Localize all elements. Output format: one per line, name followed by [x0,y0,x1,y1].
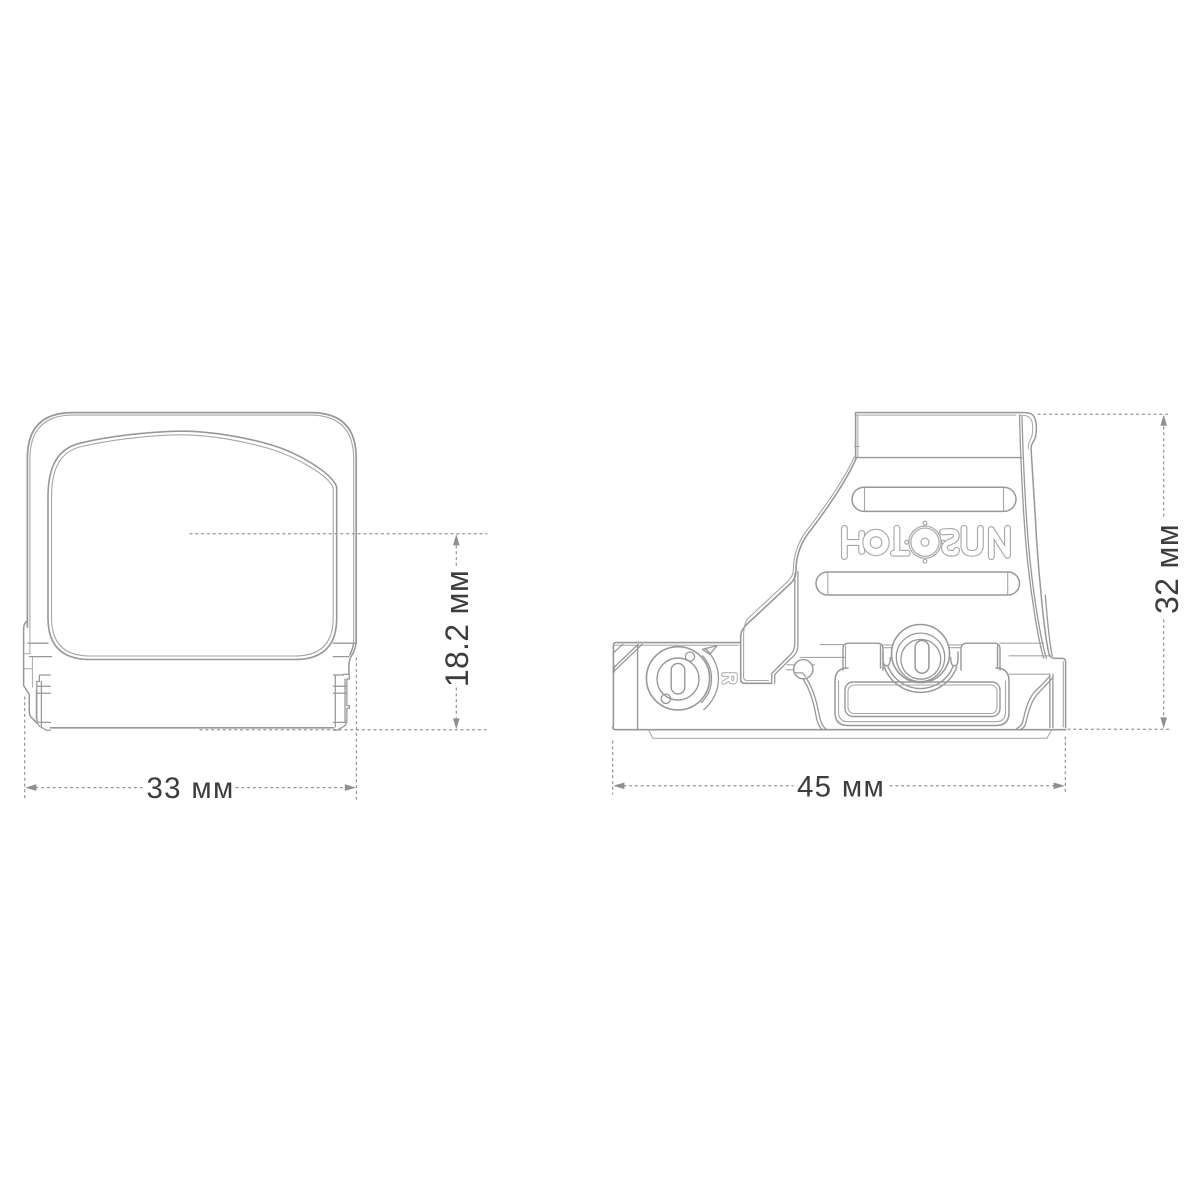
svg-text:18.2 мм: 18.2 мм [439,570,475,687]
svg-text:33 мм: 33 мм [146,772,234,805]
svg-text:45 мм: 45 мм [797,771,885,804]
svg-text:32 мм: 32 мм [1149,524,1185,614]
